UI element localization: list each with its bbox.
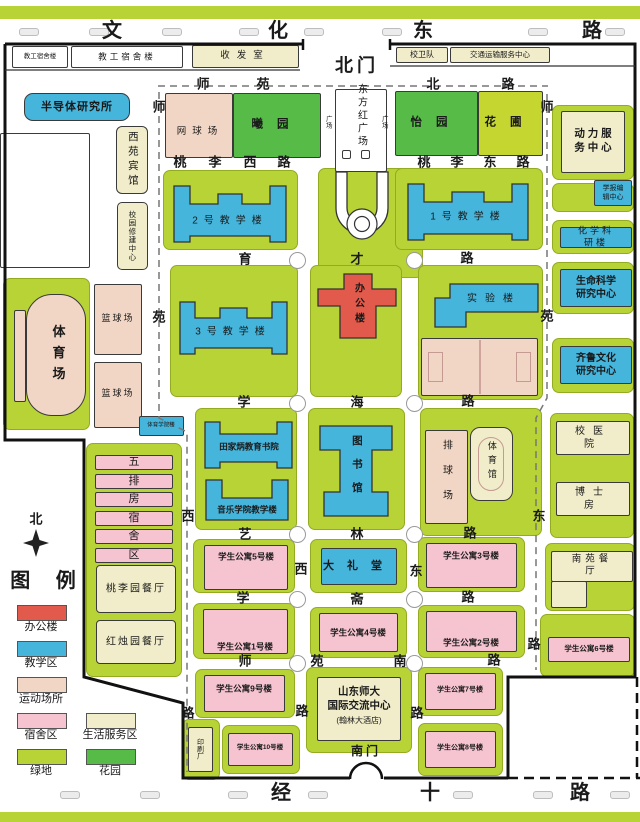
shiyuan-west-char1: 师 (152, 100, 165, 117)
taoliyuan-label: 桃李园餐厅 (106, 583, 166, 596)
mail-room-label: 收发室 (220, 50, 270, 62)
dorm3-label: 学生公寓3号楼 (443, 550, 499, 561)
basketball1-label: 篮球场 (101, 313, 134, 325)
journal-label: 学报编 辑中心 (603, 184, 624, 202)
nanyuan-label: 南苑餐厅 (568, 554, 616, 579)
legend-label: 运动场所 (19, 692, 63, 706)
wenhua-rd-char3: 东 (413, 18, 433, 44)
dorm6-label: 学生公寓6号楼 (564, 644, 613, 654)
huapu-label: 花圃 (485, 116, 536, 131)
legend-label: 教学区 (25, 656, 58, 670)
yilin-rd-char3: 路 (463, 526, 476, 543)
dorm9-label: 学生公寓9号楼 (216, 683, 272, 694)
chemistry-label: 化学科研楼 (574, 225, 618, 248)
west-lane-char1: 西 (294, 562, 307, 579)
basketball2-label: 篮球场 (101, 388, 134, 400)
dorm10-label: 学生公寓10号楼 (237, 744, 283, 752)
north-gate-label: 北门 (335, 54, 379, 77)
south-gate-arch (350, 763, 382, 779)
five-row-char3: 房 (129, 492, 140, 506)
taoli-west-char4: 路 (277, 155, 290, 172)
power-service-label: 动 力 服 务 中 心 (574, 127, 611, 154)
dorm4-label: 学生公寓4号楼 (330, 627, 386, 638)
printshop-label: 印刷厂 (195, 739, 204, 760)
construction-label: 校园修建中心 (127, 211, 137, 262)
taoli-east-char3: 东 (483, 155, 496, 172)
wenhua-rd-char2: 化 (268, 18, 288, 44)
life-science-label: 生命科学 研究中心 (576, 275, 616, 301)
xiyuan-hotel-label: 西苑宾馆 (125, 131, 139, 189)
shiyuan-east-char3: 东 (532, 509, 545, 526)
jingshi-rd-char2: 十 (420, 780, 440, 806)
xuezhai-rd-char2: 斋 (350, 592, 363, 609)
stadium-label: 体育场 (49, 325, 66, 388)
xuehai-rd-char3: 路 (461, 394, 474, 411)
xuehai-rd-char1: 学 (237, 395, 250, 412)
shiyuan-west-char3: 西 (181, 509, 194, 526)
yucai-rd-char3: 路 (460, 251, 473, 268)
dorm5-label: 学生公寓5号楼 (218, 551, 274, 562)
dorm7-label: 学生公寓7号楼 (437, 685, 483, 694)
legend-label: 花园 (99, 764, 121, 778)
plaza-side-right: 广场 (379, 116, 387, 129)
east-lane-char1: 东 (409, 564, 422, 581)
shiyuan-north-char3: 北 (426, 77, 439, 94)
staff-dorm-large-label: 教工宿舍楼 (98, 51, 156, 62)
five-row-char1: 五 (129, 455, 140, 469)
soccer-goal-left (428, 352, 443, 382)
dorm1-label: 学生公寓1号楼 (217, 641, 273, 652)
jingshi-rd-char1: 经 (271, 780, 291, 806)
semiconductor-label: 半导体研究所 (41, 100, 113, 114)
tianjiabing-label: 田家炳教育书院 (219, 441, 279, 452)
shiyuan-south-char1: 师 (238, 654, 251, 671)
shiyuan-south-char4: 路 (487, 653, 500, 670)
campus-map: 北 图 例 办公楼教学区运动场所宿舍区绿地生活服务区花园 文化东路北门教工宿舍楼… (0, 0, 640, 822)
doctor-house-label: 博士房 (570, 486, 617, 512)
bldg1-label: 1号教学楼 (430, 211, 506, 224)
map-structure-layer (0, 0, 640, 822)
yilin-rd-char1: 艺 (238, 527, 251, 544)
jingshi-rd-char3: 路 (570, 780, 590, 806)
legend-title: 图 例 (10, 568, 86, 594)
music-college-label: 音乐学院教学楼 (217, 504, 277, 515)
shiyuan-south-char2: 苑 (310, 654, 323, 671)
shiyuan-east-char4: 路 (527, 637, 540, 654)
legend-label: 生活服务区 (83, 728, 138, 742)
clinic-label: 校医院 (570, 425, 617, 451)
shiyuan-north-char1: 师 (196, 77, 209, 94)
east-lane-char2: 路 (410, 706, 423, 723)
xiyuan-garden-label: 曦园 (252, 118, 303, 133)
south-gate-label: 南门 (351, 744, 381, 760)
dongfanghong-label: 东方红广场 (355, 84, 368, 149)
shiyuan-east-road (536, 94, 547, 670)
legend-north-label: 北 (29, 512, 42, 529)
soccer-goal-right (516, 352, 531, 382)
volleyball-label: 排球场 (440, 440, 453, 515)
shiyuan-west-char2: 苑 (152, 310, 165, 327)
xuezhai-rd-char1: 学 (236, 591, 249, 608)
yucai-rd-char1: 育 (238, 252, 251, 269)
plaza-side-left: 广场 (323, 116, 331, 129)
five-row-char5: 舍 (129, 529, 140, 543)
horseshoe-fountain-outer (347, 209, 377, 239)
yilin-rd-char2: 林 (350, 527, 363, 544)
wenhua-rd-char1: 文 (102, 18, 122, 44)
tennis-label: 网球场 (177, 126, 224, 138)
yucai-rd-char2: 才 (350, 252, 363, 269)
traffic-service-label: 交通运输服务中心 (470, 50, 530, 60)
taoli-east-char4: 路 (516, 155, 529, 172)
shiyuan-north-char2: 苑 (256, 77, 269, 94)
xuezhai-rd-char3: 路 (461, 590, 474, 607)
shiyuan-north-char4: 路 (501, 77, 514, 94)
library-label: 图书馆 (349, 435, 363, 506)
legend-label: 宿舍区 (25, 728, 58, 742)
taoli-west-char3: 西 (243, 155, 256, 172)
shiyuan-east-char1: 师 (540, 100, 553, 117)
compass-star-icon (23, 529, 49, 557)
office-label: 办公楼 (352, 283, 365, 328)
auditorium-label: 大礼堂 (323, 559, 395, 573)
lab-label: 实验楼 (467, 293, 521, 306)
bldg2-label: 2号教学楼 (192, 215, 268, 228)
taoli-west-char1: 桃 (173, 155, 186, 172)
taoli-east-char2: 李 (450, 155, 463, 172)
dorm8-label: 学生公寓8号楼 (437, 743, 483, 752)
staff-dorm-small-label: 教工宿舍楼 (24, 53, 57, 61)
taoli-west-char2: 李 (208, 155, 221, 172)
pe-college-label: 体育学院楼 (147, 422, 175, 429)
qilu-label: 齐鲁文化 研究中心 (576, 352, 616, 378)
lab-bldg-shape (435, 284, 538, 327)
yiyuan-label: 怡园 (411, 116, 462, 131)
west-lane-char2: 路 (295, 704, 308, 721)
shiyuan-south-char3: 南 (393, 654, 406, 671)
wenhua-rd-char4: 路 (582, 18, 602, 44)
guard-team-label: 校卫队 (410, 50, 434, 60)
shiyuan-west-char4: 路 (181, 706, 194, 723)
hongzhuyuan-label: 红烛园餐厅 (106, 636, 166, 649)
soccer-midline (479, 340, 481, 394)
gymnasium-label: 体育馆 (485, 441, 497, 483)
hotel-label: 山东师大 国际交流中心 (328, 685, 391, 712)
legend-label: 绿地 (30, 764, 52, 778)
bldg3-label: 3号教学楼 (195, 326, 271, 339)
xuehai-rd-char2: 海 (350, 395, 363, 412)
dorm2-label: 学生公寓2号楼 (443, 637, 499, 648)
five-row-char2: 排 (129, 474, 140, 488)
five-row-char4: 宿 (129, 511, 140, 525)
taoli-east-char1: 桃 (417, 155, 430, 172)
hotel-sublabel: (翰林大酒店) (336, 716, 381, 726)
shiyuan-east-char2: 苑 (540, 309, 553, 326)
five-row-char6: 区 (129, 548, 140, 562)
legend-label: 办公楼 (25, 620, 58, 634)
